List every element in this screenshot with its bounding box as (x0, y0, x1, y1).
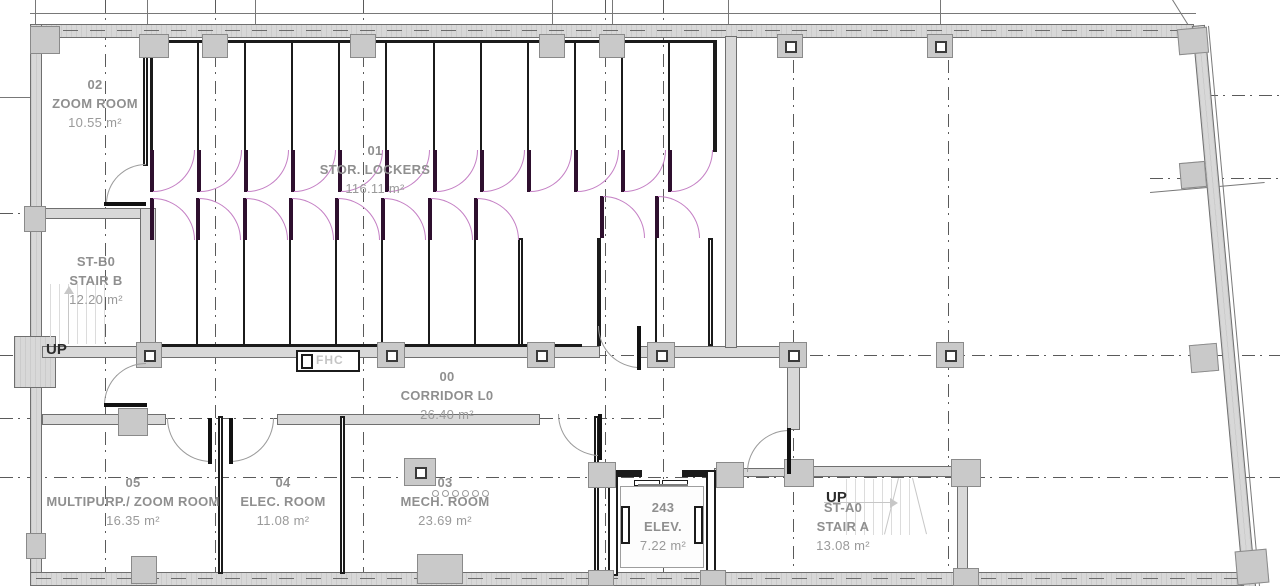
column-symbol (788, 350, 800, 362)
room-area: 26.40 m² (401, 405, 494, 424)
grid-line (363, 0, 364, 586)
partition-wall (616, 470, 642, 477)
partition-wall (682, 470, 708, 477)
locker-stall-divider (289, 240, 291, 344)
locker-stall-divider (335, 240, 337, 344)
partition-wall (340, 416, 345, 574)
locker-door-swing (431, 198, 473, 240)
grid-line (793, 60, 794, 586)
room-number: 243 (640, 498, 686, 517)
structural-column (716, 462, 744, 488)
locker-door-swing (671, 150, 713, 192)
structural-column (1177, 27, 1209, 56)
elevator-guide-rail (694, 506, 703, 544)
column-symbol (935, 41, 947, 53)
structural-column (588, 462, 616, 488)
room-label-stor-lockers: 01 STOR. LOCKERS 116.11 m² (320, 141, 431, 198)
locker-door-swing (577, 150, 619, 192)
locker-stall-divider (243, 240, 245, 344)
elevator-door-sill (638, 484, 688, 486)
room-area: 16.35 m² (46, 511, 219, 530)
locker-door-swing (624, 150, 666, 192)
column-symbol (785, 41, 797, 53)
structural-column (539, 34, 565, 58)
interior-wall (790, 466, 968, 477)
grid-line (1205, 95, 1280, 96)
structural-column (951, 459, 981, 487)
locker-stall-divider (474, 240, 476, 344)
structural-column (30, 26, 60, 54)
room-area: 7.22 m² (640, 536, 686, 555)
structural-column (131, 556, 157, 584)
structural-column (647, 342, 675, 368)
partition-wall (708, 238, 713, 346)
stair-a-tread (900, 479, 901, 535)
exterior-wall-left (30, 24, 42, 574)
stair-a-break-line (912, 478, 927, 535)
floor-plan: 02 ZOOM ROOM 10.55 m² 01 STOR. LOCKERS 1… (0, 0, 1280, 586)
locker-door-swing (603, 196, 645, 238)
door-swing (747, 430, 789, 472)
locker-door-swing (477, 198, 519, 240)
locker-door-swing (153, 198, 195, 240)
stair-a-tread (873, 479, 874, 535)
structural-column (1179, 161, 1207, 189)
stair-b-tread (59, 284, 60, 344)
interior-wall (725, 36, 737, 348)
locker-stall-divider (574, 43, 576, 152)
room-area: 23.69 m² (401, 511, 490, 530)
locker-door-swing (292, 198, 334, 240)
room-label-elec-room: 04 ELEC. ROOM 11.08 m² (240, 473, 325, 530)
structural-column (118, 408, 148, 436)
room-label-stair-b: ST-B0 STAIR B 12.20 m² (69, 252, 123, 309)
stair-a-tread (909, 479, 910, 535)
room-label-multipurpose: 05 MULTIPURP./ ZOOM ROOM 16.35 m² (46, 473, 219, 530)
partition-wall (518, 238, 523, 346)
door-swing (230, 418, 274, 462)
grid-line (948, 60, 949, 586)
room-label-mech-room: 03 MECH. ROOM 23.69 m² (401, 473, 490, 530)
room-name: ELEC. ROOM (240, 492, 325, 511)
room-name: CORRIDOR L0 (401, 386, 494, 405)
room-area: 116.11 m² (320, 179, 431, 198)
room-name: STAIR A (816, 517, 870, 536)
room-name: STAIR B (69, 271, 123, 290)
room-number: ST-B0 (69, 252, 123, 271)
fire-hose-cabinet-box (301, 354, 313, 369)
structural-column (350, 34, 376, 58)
locker-door-swing (246, 198, 288, 240)
door-leaf (598, 414, 602, 460)
structural-column (936, 342, 964, 368)
room-name: STOR. LOCKERS (320, 160, 431, 179)
locker-stall-divider (244, 43, 246, 152)
structural-column (527, 342, 555, 368)
locker-stall-divider (196, 240, 198, 344)
locker-stall-divider (480, 43, 482, 152)
column-symbol (945, 350, 957, 362)
wall-centerline (36, 30, 1191, 31)
structural-column (139, 34, 169, 58)
structural-column (777, 34, 803, 58)
door-swing (558, 414, 600, 456)
column-symbol (386, 350, 398, 362)
door-swing (167, 418, 211, 462)
column-symbol (144, 350, 156, 362)
door-leaf (229, 418, 233, 464)
slab-edge-line (1208, 26, 1260, 586)
room-label-zoom-room: 02 ZOOM ROOM 10.55 m² (52, 75, 138, 132)
room-number: 04 (240, 473, 325, 492)
door-leaf (637, 326, 641, 370)
room-area: 11.08 m² (240, 511, 325, 530)
locker-door-swing (658, 196, 700, 238)
fire-hose-cabinet-label: FHC (316, 353, 344, 367)
structural-column (202, 34, 228, 58)
grid-line (605, 0, 606, 586)
locker-door-swing (247, 150, 289, 192)
stair-a-tread (882, 479, 883, 535)
structural-column (779, 342, 807, 368)
room-number: 01 (320, 141, 431, 160)
locker-stall-divider (381, 240, 383, 344)
locker-door-swing (436, 150, 478, 192)
room-label-corridor: 00 CORRIDOR L0 26.40 m² (401, 367, 494, 424)
room-label-elevator: 243 ELEV. 7.22 m² (640, 498, 686, 555)
exterior-wall-bottom (30, 572, 1252, 586)
column-symbol (656, 350, 668, 362)
wall-centerline (36, 578, 1248, 579)
structural-column (927, 34, 953, 58)
door-leaf (787, 428, 791, 474)
room-number: 00 (401, 367, 494, 386)
structural-column (953, 568, 979, 586)
column-symbol (536, 350, 548, 362)
room-area: 12.20 m² (69, 290, 123, 309)
partition-wall (713, 40, 717, 152)
locker-stall-divider (668, 43, 670, 152)
locker-door-swing (338, 198, 380, 240)
locker-door-swing (483, 150, 525, 192)
locker-door-swing (530, 150, 572, 192)
stair-a-up-label: UP (826, 489, 847, 506)
elevator-guide-rail (621, 506, 630, 544)
structural-column (700, 570, 726, 586)
locker-stall-divider (433, 43, 435, 152)
partition-wall (706, 470, 716, 576)
structural-column (599, 34, 625, 58)
locker-stall-divider (338, 43, 340, 152)
structural-column (1189, 343, 1219, 373)
locker-stall-divider (621, 43, 623, 152)
stair-b-up-label: UP (46, 341, 67, 358)
room-label-stair-a: ST-A0 STAIR A 13.08 m² (816, 498, 870, 555)
room-name: ZOOM ROOM (52, 94, 138, 113)
structural-column (417, 554, 463, 584)
structural-column (26, 533, 46, 559)
structural-column (1235, 549, 1270, 586)
room-name: MULTIPURP./ ZOOM ROOM (46, 492, 219, 511)
door-leaf (104, 202, 146, 206)
room-area: 13.08 m² (816, 536, 870, 555)
slab-edge-line (30, 13, 1196, 14)
locker-stall-divider (385, 43, 387, 152)
room-number: 03 (401, 473, 490, 492)
locker-stall-divider (291, 43, 293, 152)
structural-column (24, 206, 46, 232)
door-leaf (208, 418, 212, 464)
locker-stall-divider (428, 240, 430, 344)
room-name: ELEV. (640, 517, 686, 536)
locker-stall-divider (655, 238, 657, 344)
room-area: 10.55 m² (52, 113, 138, 132)
locker-door-swing (199, 198, 241, 240)
locker-door-swing (153, 150, 195, 192)
door-swing (106, 164, 146, 204)
structural-column (588, 570, 614, 586)
locker-stall-divider (527, 43, 529, 152)
structural-column (377, 342, 405, 368)
interior-wall (42, 208, 152, 219)
door-swing (104, 363, 146, 405)
grid-stub (0, 97, 30, 98)
locker-stall-divider (197, 43, 199, 152)
room-name: MECH. ROOM (401, 492, 490, 511)
stair-b-tread (50, 284, 51, 344)
room-number: 05 (46, 473, 219, 492)
door-leaf (104, 403, 147, 407)
room-number: 02 (52, 75, 138, 94)
locker-door-swing (384, 198, 426, 240)
locker-door-swing (200, 150, 242, 192)
exterior-wall-right-slanted (1192, 25, 1256, 586)
